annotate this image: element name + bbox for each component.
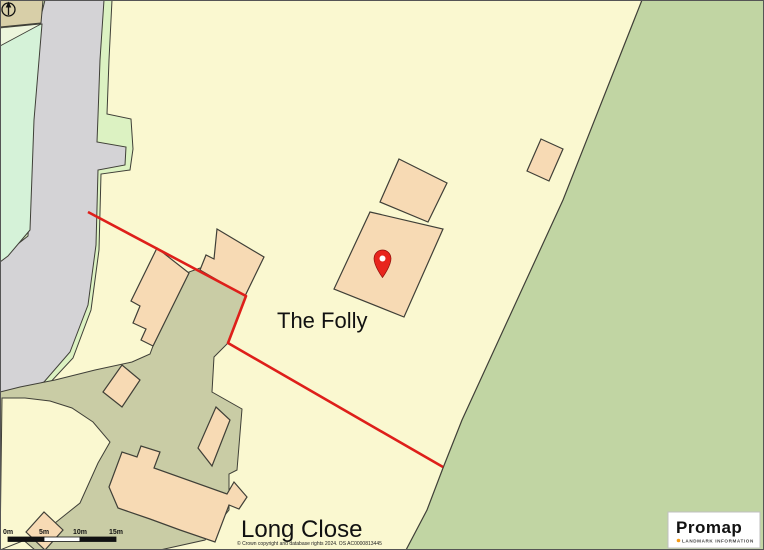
map-canvas[interactable]: The Folly Long Close © Crown copyright a… (0, 0, 764, 550)
scale-tick-15: 15m (109, 529, 123, 536)
promap-logo-subtitle: LANDMARK INFORMATION (682, 539, 754, 544)
scale-segment-3 (80, 537, 116, 542)
promap-logo-text: Promap (676, 518, 742, 537)
promap-logo: Promap LANDMARK INFORMATION (668, 512, 760, 548)
copyright-text: © Crown copyright and database rights 20… (237, 540, 382, 547)
scale-tick-5: 5m (39, 529, 49, 536)
scale-tick-10: 10m (73, 529, 87, 536)
scale-tick-0: 0m (3, 529, 13, 536)
building-top-left (0, 0, 43, 27)
scale-segment-1 (8, 537, 44, 542)
scale-segment-2 (44, 537, 80, 542)
logo-dot-icon (677, 539, 681, 543)
label-the-folly: The Folly (277, 308, 367, 333)
label-long-close: Long Close (241, 516, 362, 543)
